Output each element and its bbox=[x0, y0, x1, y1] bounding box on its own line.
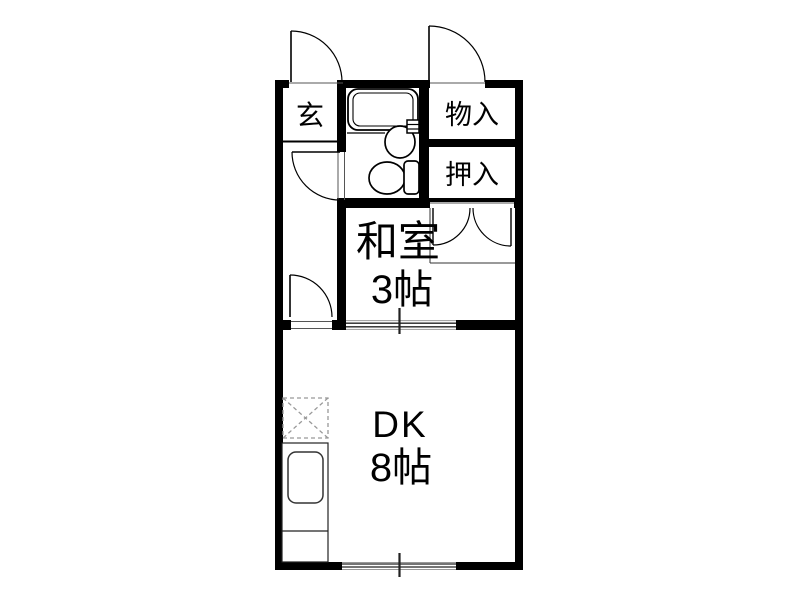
closet-label: 押入 bbox=[445, 160, 499, 190]
faucet-wall-stub bbox=[419, 122, 426, 131]
floor-plan-canvas: 玄 物入 押入 和室 3帖 DK 8帖 bbox=[0, 0, 800, 600]
wall-segment bbox=[332, 320, 346, 330]
bathroom-door-swing-arc bbox=[292, 152, 340, 200]
kitchen bbox=[282, 398, 328, 562]
wall-segment bbox=[456, 320, 523, 330]
washitsu-size-label: 3帖 bbox=[371, 268, 433, 312]
wall-segment bbox=[275, 320, 291, 330]
storage-door-swing-arc bbox=[429, 26, 485, 82]
refrigerator-space-icon bbox=[283, 398, 328, 438]
dk-label: DK bbox=[372, 404, 427, 445]
floor-plan: 玄 物入 押入 和室 3帖 DK 8帖 bbox=[0, 0, 800, 600]
closet-door-swing-arc-right bbox=[473, 208, 511, 246]
wall-segment bbox=[430, 198, 514, 202]
wall-segment bbox=[514, 198, 523, 208]
window bbox=[342, 553, 456, 577]
genkan-label: 玄 bbox=[296, 100, 324, 131]
wall-segment bbox=[337, 198, 430, 208]
wall-segment bbox=[419, 139, 523, 147]
corridor-door-swing-arc bbox=[290, 275, 332, 317]
toilet-tank-icon bbox=[404, 161, 419, 194]
toilet-bowl-icon bbox=[369, 162, 405, 194]
dk-size-label: 8帖 bbox=[370, 446, 432, 490]
wall-segment bbox=[275, 562, 342, 570]
bathtub-inner-icon bbox=[353, 93, 413, 126]
faucet-icon bbox=[407, 120, 419, 133]
wall-segment bbox=[456, 562, 523, 570]
wall-segment bbox=[337, 80, 346, 152]
storage-label: 物入 bbox=[445, 100, 499, 130]
washitsu-label: 和室 bbox=[356, 218, 440, 265]
entrance-door-swing-arc bbox=[291, 31, 342, 82]
wall-segment bbox=[337, 200, 346, 330]
sliding-door-gap bbox=[346, 320, 456, 330]
wall-segment bbox=[343, 80, 430, 88]
bathroom-fixtures bbox=[347, 89, 426, 194]
